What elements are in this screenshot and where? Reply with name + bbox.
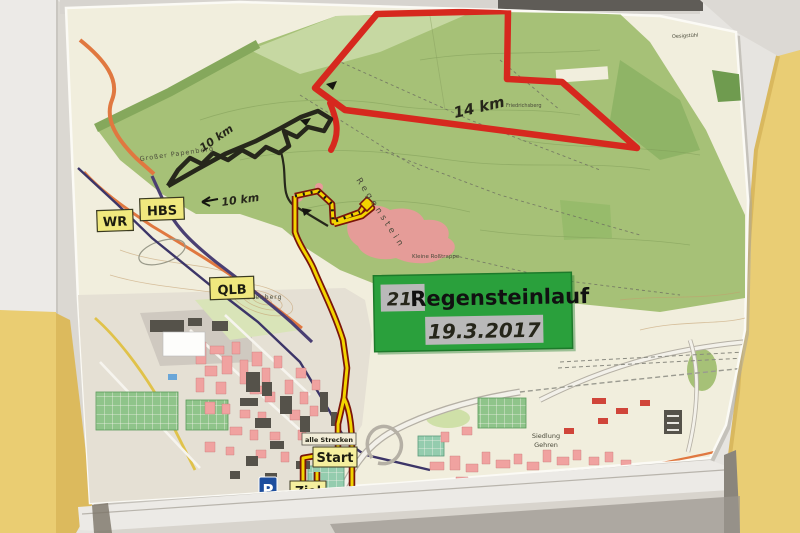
- place-rosstrappe: Kleine Roßtrappe: [412, 254, 460, 260]
- all-courses-label: alle Strecken: [302, 433, 356, 445]
- svg-text:alle Strecken: alle Strecken: [305, 436, 353, 444]
- place-friedrichsberg: Friedrichsberg: [506, 103, 542, 109]
- place-siedlung: Siedlung: [532, 432, 560, 440]
- svg-text:WR: WR: [103, 215, 128, 231]
- window-frame-band: [498, 0, 703, 11]
- road-sign-wr: WR: [97, 209, 134, 231]
- road-sign-qlb: QLB: [210, 276, 255, 300]
- race-date: 19.3.2017: [428, 318, 541, 344]
- svg-text:HBS: HBS: [147, 203, 178, 219]
- large-white-building: [163, 332, 205, 356]
- place-gehren: Gehren: [534, 441, 558, 449]
- svg-text:QLB: QLB: [217, 282, 247, 298]
- race-name: Regensteinlauf: [410, 284, 590, 311]
- pond: [168, 374, 177, 380]
- photo-of-race-map-on-wall: Großer Papenberg Regenstein Platenberg F…: [0, 0, 800, 533]
- start-label: Start: [313, 447, 357, 467]
- svg-text:Start: Start: [317, 451, 354, 466]
- map-photo-canvas: Großer Papenberg Regenstein Platenberg F…: [0, 0, 800, 533]
- road-sign-hbs: HBS: [140, 197, 185, 221]
- wall-yellow-left: [0, 310, 56, 533]
- event-sign: 21. Regensteinlauf 19.3.2017: [373, 272, 591, 355]
